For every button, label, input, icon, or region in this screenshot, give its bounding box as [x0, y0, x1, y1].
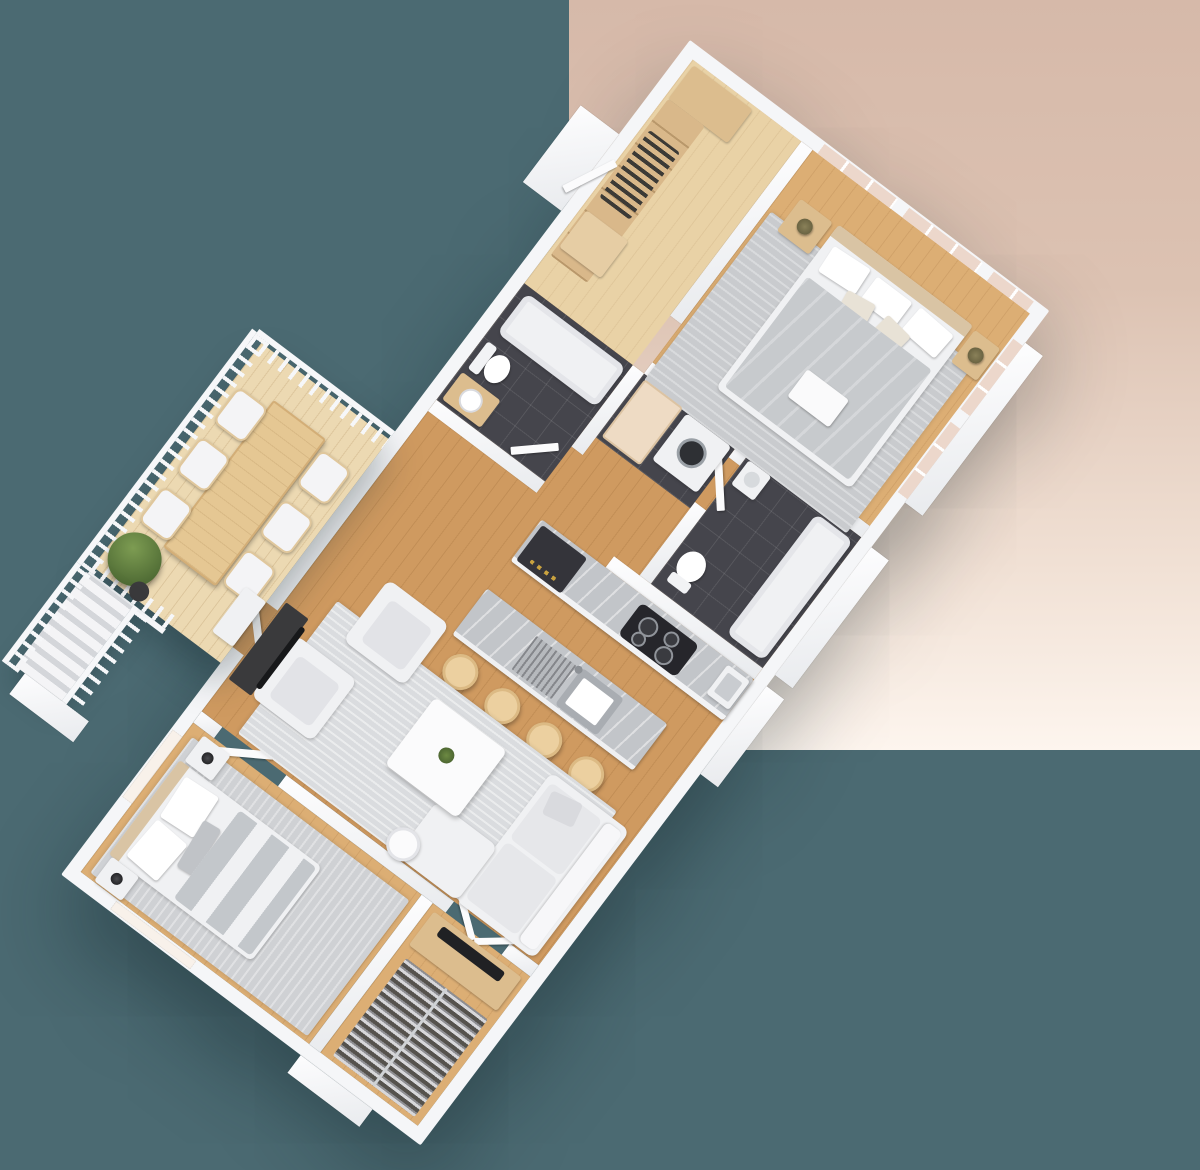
scene	[0, 0, 1200, 1170]
